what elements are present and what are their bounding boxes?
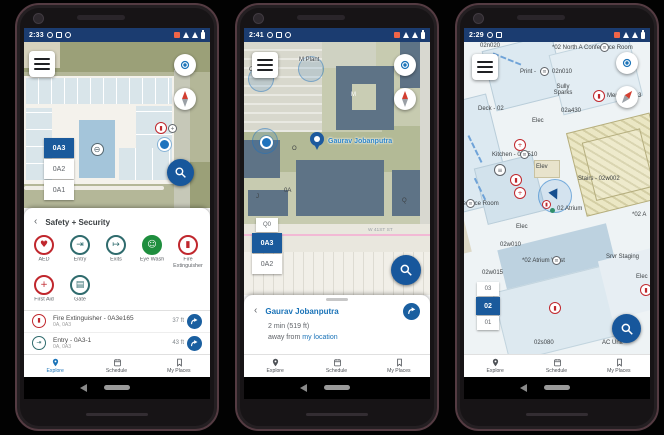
search-button[interactable]	[612, 314, 641, 343]
bookmark-icon	[615, 358, 624, 367]
directions-arrow-icon	[407, 306, 417, 316]
bottom-navigation: Explore Schedule My Places	[24, 354, 210, 377]
floor-selector: 0A3 0A2 0A1	[44, 138, 74, 201]
desktop-background: 2:33	[0, 0, 664, 435]
status-time: 2:29	[469, 32, 484, 39]
calendar-icon	[113, 358, 122, 367]
bottom-sheet: ‹ Gaurav Jobanputra 2 min (519 ft) away …	[244, 295, 430, 354]
elevator-icon: ⊖	[91, 143, 104, 156]
building-label: M Plant	[298, 56, 324, 82]
away-from-text: away from my location	[268, 334, 430, 341]
sheet-title[interactable]: Gaurav Jobanputra	[265, 307, 338, 316]
room-label: Stairs - 02w002	[578, 176, 620, 182]
first-aid-icon: +	[34, 275, 54, 295]
fire-extinguisher-map-icon[interactable]: ▮	[155, 122, 167, 134]
android-home-button[interactable]	[104, 385, 130, 390]
bottom-speaker	[526, 413, 588, 416]
calendar-icon	[333, 358, 342, 367]
front-camera-icon	[473, 13, 484, 24]
locate-icon	[621, 57, 633, 69]
map-room-row	[119, 148, 172, 180]
map-pin-icon	[491, 358, 500, 367]
menu-button[interactable]	[472, 54, 498, 80]
tab-schedule[interactable]: Schedule	[86, 355, 148, 377]
category-aed[interactable]: ♥ AED	[26, 235, 62, 270]
poi-distance: 43 ft	[172, 340, 184, 346]
room-label: Deck - 02	[478, 106, 504, 112]
fire-extinguisher-map-icon[interactable]: ▮	[542, 200, 551, 209]
search-icon	[399, 263, 413, 277]
category-exits[interactable]: ↦ Exits	[98, 235, 134, 270]
room-label: 02w010	[500, 242, 521, 248]
sheet-title: Safety + Security	[45, 218, 110, 227]
bottom-navigation: Explore Schedule My Places	[464, 354, 650, 377]
bottom-sheet: ‹ Safety + Security ♥ AED ⇥ Entry ↦ Exit…	[24, 208, 210, 354]
notification-icon	[394, 32, 400, 38]
search-button[interactable]	[167, 159, 194, 186]
screenshot-icon	[276, 32, 282, 38]
room-label: 02n020	[480, 43, 500, 49]
my-location-button[interactable]	[394, 54, 416, 76]
printer-icon[interactable]: ≡	[540, 67, 549, 76]
alarm-icon	[487, 32, 493, 38]
android-nav-bar	[464, 377, 650, 399]
category-first-aid[interactable]: + First Aid	[26, 275, 62, 304]
indoor-floor-map[interactable]: 02n020 *02 North A Conference Room ≡ Pri…	[464, 42, 650, 354]
compass-needle-icon	[619, 88, 635, 105]
earpiece-speaker	[517, 15, 565, 20]
app-notification-icon	[65, 32, 71, 38]
fire-extinguisher-map-icon[interactable]: ▮	[549, 302, 561, 314]
map-building	[322, 42, 376, 68]
tab-explore[interactable]: Explore	[464, 355, 526, 377]
android-back-button[interactable]	[300, 384, 307, 392]
room-label: 02 Atrium	[557, 206, 582, 212]
map-pin-icon	[51, 358, 60, 367]
conference-room-icon[interactable]: ≡	[466, 199, 475, 208]
android-back-button[interactable]	[80, 384, 87, 392]
aed-icon: ♥	[34, 235, 54, 255]
room-label: Elec	[516, 224, 528, 230]
tab-my-places[interactable]: My Places	[148, 355, 210, 377]
earpiece-speaker	[77, 15, 125, 20]
building-label: Q	[402, 198, 407, 204]
building-label: 0A	[284, 188, 291, 194]
battery-icon	[421, 32, 425, 39]
my-location-link[interactable]: my location	[302, 334, 337, 341]
map-road	[420, 42, 430, 226]
bottom-navigation: Explore Schedule My Places	[244, 354, 430, 377]
search-button[interactable]	[391, 255, 421, 285]
compass-needle-icon	[401, 91, 409, 107]
locate-icon	[179, 59, 191, 71]
accessibility-map-icon[interactable]: ≡	[494, 164, 506, 176]
phone-frame-3: 2:29	[455, 3, 659, 431]
poi-distance: 37 ft	[172, 318, 184, 324]
building-label: J	[256, 194, 259, 200]
room-label: Elec	[636, 274, 648, 280]
poi-map-icon[interactable]: +	[168, 124, 177, 133]
phone-3-screen: 2:29	[464, 28, 650, 399]
wifi-icon	[623, 32, 629, 38]
tab-my-places[interactable]: My Places	[588, 355, 650, 377]
conference-room-icon[interactable]: ≡	[600, 43, 609, 52]
directions-arrow-icon	[190, 339, 199, 348]
back-button[interactable]: ‹	[254, 306, 257, 316]
app-notification-icon	[285, 32, 291, 38]
floor-option-selected[interactable]: 0A3	[252, 233, 282, 253]
room-label: *02 North A Conference Room	[552, 45, 633, 51]
compass-button[interactable]	[616, 86, 638, 108]
calendar-icon	[553, 358, 562, 367]
category-grid: ♥ AED ⇥ Entry ↦ Exits ☺ Eye Wash	[24, 230, 210, 309]
floor-option[interactable]: Q0	[256, 218, 278, 232]
search-icon	[620, 322, 634, 336]
person-icon	[314, 136, 320, 142]
poi-title: Entry - 0A3-1	[53, 337, 172, 344]
status-bar: 2:29	[464, 28, 650, 42]
fire-extinguisher-icon: ▮	[178, 235, 198, 255]
category-entry[interactable]: ⇥ Entry	[62, 235, 98, 270]
signal-icon	[192, 32, 198, 38]
compass-needle-icon	[181, 91, 189, 107]
floor-option[interactable]: 01	[477, 316, 499, 330]
room-label: Srvr Staging	[606, 254, 639, 260]
tab-my-places[interactable]: My Places	[368, 355, 430, 377]
entry-icon: ⇥	[32, 336, 46, 350]
elevator-room[interactable]: ⊖	[79, 120, 115, 178]
bookmark-icon	[175, 358, 184, 367]
room-label: 02n010	[552, 69, 572, 75]
poi-title: Fire Extinguisher - 0A3e165	[53, 315, 172, 322]
android-home-button[interactable]	[324, 385, 350, 390]
room-label: 02w015	[482, 270, 503, 276]
category-gate[interactable]: ▤ Gate	[62, 275, 98, 304]
gate-icon: ▤	[70, 275, 90, 295]
battery-icon	[201, 32, 205, 39]
my-location-button[interactable]	[616, 52, 638, 74]
poi-dot-icon	[550, 208, 555, 213]
notification-icon	[614, 32, 620, 38]
back-button[interactable]: ‹	[34, 217, 37, 227]
phone-2-screen: 2:41	[244, 28, 430, 399]
wifi-icon	[183, 32, 189, 38]
tab-explore[interactable]: Explore	[244, 355, 306, 377]
map-room-row	[26, 78, 172, 104]
tab-schedule[interactable]: Schedule	[306, 355, 368, 377]
phone-frame-2: 2:41	[235, 3, 439, 431]
floor-option-selected[interactable]: 0A3	[44, 138, 74, 158]
room-label: 02a430	[561, 108, 581, 114]
entry-icon: ⇥	[70, 235, 90, 255]
directions-button[interactable]	[187, 336, 202, 351]
status-time: 2:33	[29, 32, 44, 39]
my-location-button[interactable]	[174, 54, 196, 76]
status-time: 2:41	[249, 32, 264, 39]
room-label: 02s080	[534, 340, 554, 346]
menu-button[interactable]	[29, 51, 55, 77]
tab-schedule[interactable]: Schedule	[526, 355, 588, 377]
android-nav-bar	[24, 377, 210, 399]
tab-explore[interactable]: Explore	[24, 355, 86, 377]
signal-icon	[412, 32, 418, 38]
atrium-icon[interactable]: ≡	[552, 256, 561, 265]
location-dot	[158, 138, 171, 151]
floor-option[interactable]: 0A1	[44, 180, 74, 200]
campus-map[interactable]: M Plant O Plant M O 0A Q J W 41ST ST Gau…	[244, 42, 430, 295]
compass-button[interactable]	[174, 88, 196, 110]
eyewash-icon: ☺	[142, 235, 162, 255]
floor-option[interactable]: 0A2	[252, 254, 282, 274]
building-label: M	[351, 92, 356, 98]
android-back-button[interactable]	[520, 384, 527, 392]
locate-icon	[399, 59, 411, 71]
room-label: *02 A	[632, 212, 646, 218]
phone-frame-1: 2:33	[15, 3, 219, 431]
safety-map-icon[interactable]: +	[514, 187, 526, 199]
room-label: Elev	[536, 164, 548, 170]
floor-selector: Q0 0A3 0A2	[252, 218, 282, 275]
building-label: O	[292, 146, 297, 152]
screenshot-icon	[496, 32, 502, 38]
wifi-icon	[403, 32, 409, 38]
bookmark-icon	[395, 358, 404, 367]
android-home-button[interactable]	[544, 385, 570, 390]
status-bar: 2:41	[244, 28, 430, 42]
restroom-map-icon[interactable]: ▮	[593, 90, 605, 102]
compass-button[interactable]	[394, 88, 416, 110]
floor-selector: 03 02 01	[476, 282, 500, 331]
kitchen-icon[interactable]: ≡	[520, 150, 529, 159]
room-label: Print -	[520, 69, 536, 75]
person-pin[interactable]	[310, 132, 324, 146]
exit-icon: ↦	[106, 235, 126, 255]
street-label: W 41ST ST	[368, 228, 393, 233]
front-camera-icon	[33, 13, 44, 24]
alarm-icon	[267, 32, 273, 38]
indoor-floor-map[interactable]: ⊖ 0A3e ▮ + 0A3 0A2	[24, 42, 210, 208]
battery-icon	[641, 32, 645, 39]
map-pin-icon	[271, 358, 280, 367]
map-building	[296, 160, 384, 216]
category-fire-extinguisher[interactable]: ▮ Fire Extinguisher	[170, 235, 206, 270]
screenshot-icon	[56, 32, 62, 38]
floor-option-selected[interactable]: 02	[476, 297, 500, 315]
poi-list-item[interactable]: ⇥ Entry - 0A3-1 0A, 0A3 43 ft	[24, 333, 210, 355]
poi-subtitle: 0A, 0A3	[53, 344, 154, 349]
directions-arrow-icon	[190, 317, 199, 326]
bottom-speaker	[306, 413, 368, 416]
front-camera-icon	[253, 13, 264, 24]
poi-list-item[interactable]: ▮ Fire Extinguisher - 0A3e165 0A, 0A3 37…	[24, 311, 210, 333]
floor-option[interactable]: 03	[477, 282, 499, 296]
fire-extinguisher-icon: ▮	[32, 314, 46, 328]
poi-subtitle: 0A, 0A3	[53, 322, 154, 327]
menu-button[interactable]	[252, 52, 278, 78]
room-label: Elec	[532, 118, 544, 124]
floor-option[interactable]: 0A2	[44, 159, 74, 179]
bottom-speaker	[86, 413, 148, 416]
directions-button[interactable]	[403, 303, 420, 320]
directions-button[interactable]	[187, 314, 202, 329]
search-icon	[174, 166, 187, 179]
location-dot	[260, 136, 273, 149]
alarm-icon	[47, 32, 53, 38]
distance-text: 2 min (519 ft)	[268, 323, 430, 330]
notification-icon	[174, 32, 180, 38]
category-eyewash[interactable]: ☺ Eye Wash	[134, 235, 170, 270]
person-label: Gaurav Jobanputra	[328, 138, 392, 145]
status-bar: 2:33	[24, 28, 210, 42]
phone-1-screen: 2:33	[24, 28, 210, 399]
fire-extinguisher-map-icon[interactable]: ▮	[510, 174, 522, 186]
earpiece-speaker	[297, 15, 345, 20]
room-label: Kitchen - 02a510	[492, 152, 537, 158]
android-nav-bar	[244, 377, 430, 399]
room-label: Sully Sparks	[550, 84, 576, 97]
signal-icon	[632, 32, 638, 38]
fire-extinguisher-map-icon[interactable]: ▮	[640, 284, 650, 296]
map-building	[248, 190, 288, 216]
